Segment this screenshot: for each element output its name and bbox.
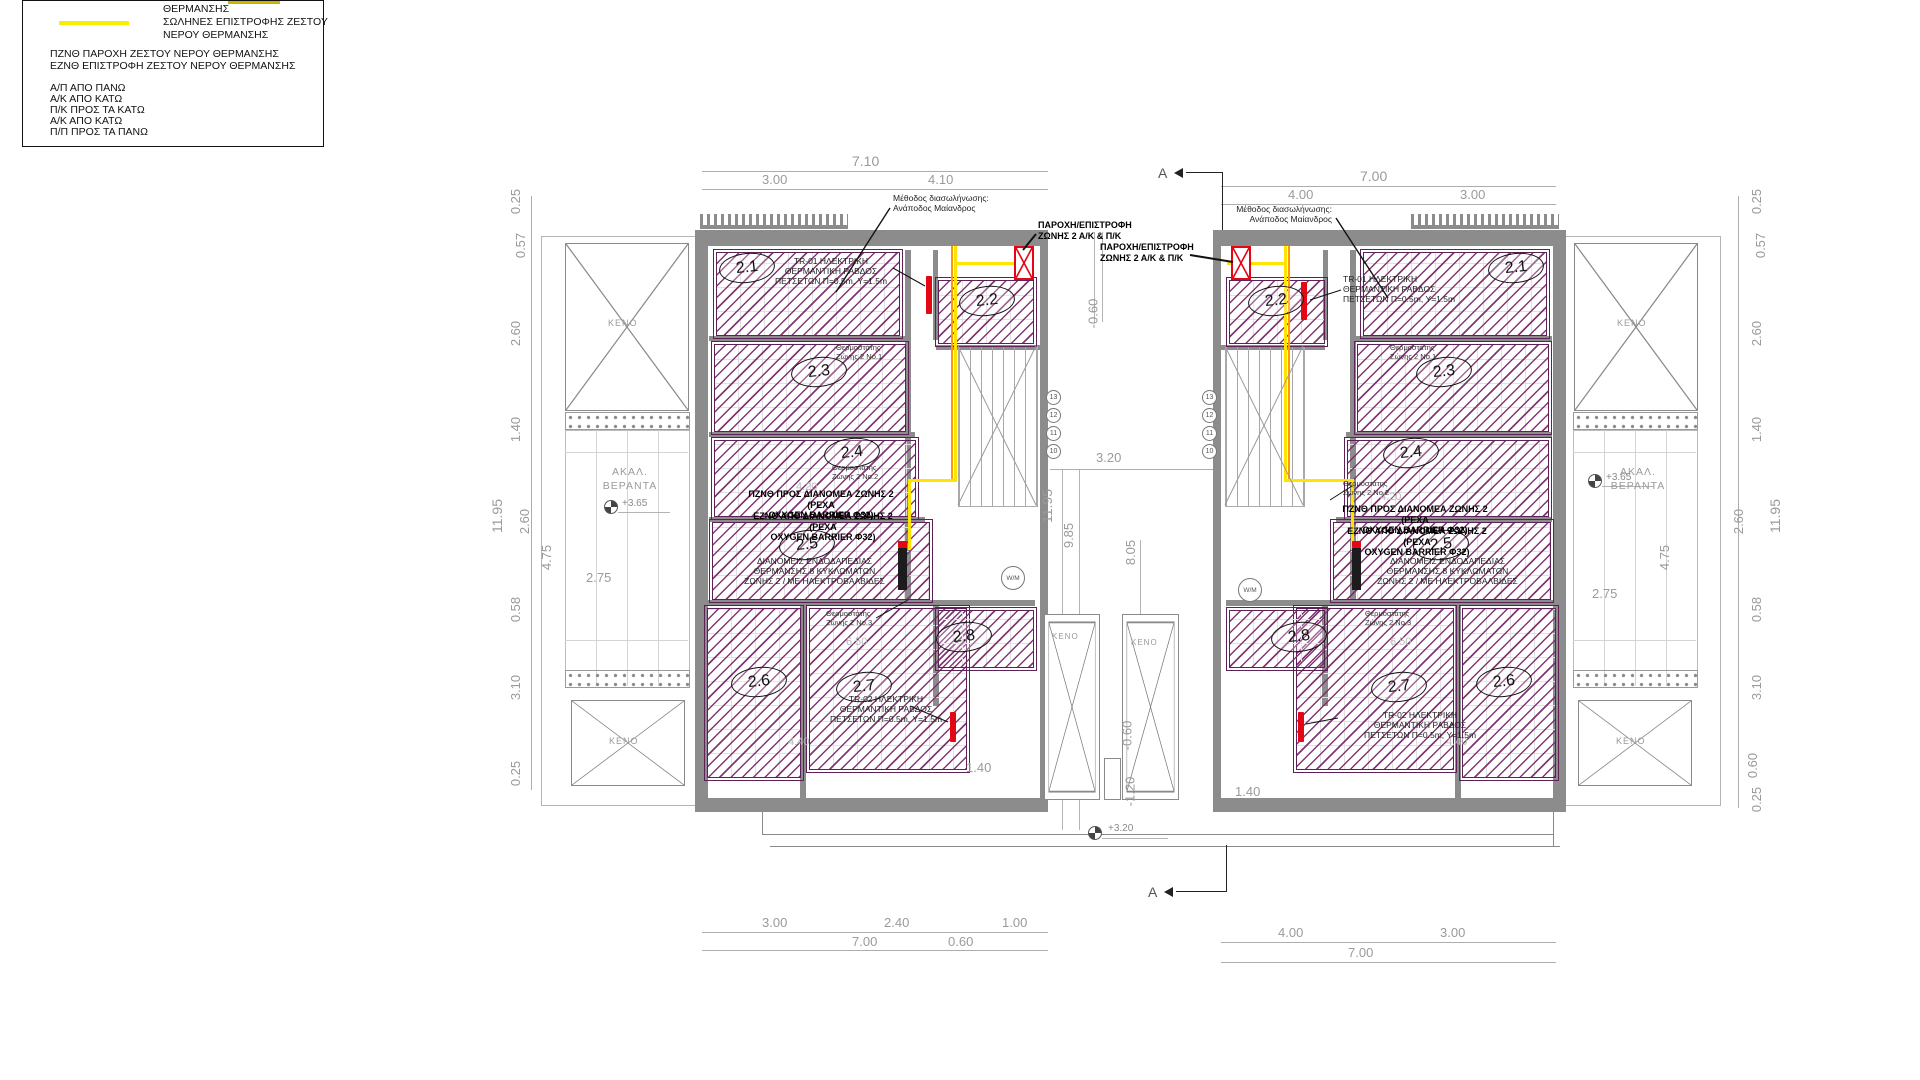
insulation-strip	[700, 214, 848, 229]
dim-line	[1221, 186, 1556, 187]
dim-label: 4.75	[539, 545, 554, 570]
dim-label: 0.25	[508, 189, 523, 214]
dim-label: 1.00	[1002, 915, 1027, 930]
annotation-manifold-left: ΔΙΑΝΟΜΕΙΣ ΕΝΔΟΔΑΠΕΔΙΑΣ ΘΕΡΜΑΝΣΗΣ 8 ΚΥΚΛΩ…	[722, 556, 907, 586]
return-pipe	[954, 246, 957, 482]
wall	[709, 336, 909, 341]
boundary-line	[1720, 236, 1721, 806]
dim-label: 3.00	[762, 915, 787, 930]
dim-label: 3.10	[508, 675, 523, 700]
annotation-thermostat: Θερμοστάτης Ζώνης 2 Νο.2	[1343, 480, 1389, 498]
balcony-line	[1573, 452, 1696, 453]
boundary-line	[541, 805, 696, 806]
keno-label: ΚΕΝΟ	[608, 318, 638, 328]
dim-label: 7.00	[1360, 168, 1387, 184]
planter-strip	[1573, 412, 1698, 430]
annotation-supply-return-right: ΠΑΡΟΧΗ/ΕΠΙΣΤΡΟΦΗ ΖΩΝΗΣ 2 Α/Κ & Π/Κ	[1100, 242, 1194, 263]
slab-outline	[770, 846, 1560, 847]
manifold-valve	[898, 541, 907, 548]
dim-label: 3.10	[1749, 675, 1764, 700]
dim-label: 0.25	[508, 761, 523, 786]
dim-line	[1738, 196, 1739, 808]
planter-strip	[565, 412, 690, 430]
dim-label: -0.60	[1119, 721, 1134, 751]
planter-strip	[565, 670, 690, 688]
keno-shaft-box	[1044, 614, 1100, 800]
dim-label: 0.25	[1749, 787, 1764, 812]
balcony-label: ΒΕΡΑΝΤΑ	[592, 480, 668, 492]
section-arrow-icon	[1164, 887, 1173, 897]
annotation-line: Ζώνης 2 Νο.2	[1343, 489, 1389, 498]
annotation-line: ΕΖΝΘ ΑΠΟ ΔΙΑΝΟΜΕΑ ΖΩΝΗΣ 2 (PEXA	[1342, 526, 1492, 547]
wall	[1213, 246, 1221, 798]
wall	[1213, 798, 1566, 812]
annotation-line: Ζώνης 2 Νο.2	[832, 473, 878, 482]
towel-rail-tr02-right	[1298, 712, 1304, 742]
annotation-tr01-left: TR-01 ΗΛΕΚΤΡΙΚΗ ΘΕΡΜΑΝΤΙΚΗ ΡΑΒΔΟΣ ΠΕΤΣΕΤ…	[765, 256, 897, 286]
riser-symbol-left	[1014, 246, 1034, 280]
balcony-line	[565, 640, 688, 641]
balcony-line	[1573, 640, 1696, 641]
dim-label: 2.75	[586, 570, 611, 585]
dim-label: 3.00	[1440, 925, 1465, 940]
annotation-thermostat: Θερμοστάτης Ζώνης 2 Νο.3	[1365, 610, 1411, 628]
annotation-thermostat: Θερμοστάτης Ζώνης 2 Νο.2	[832, 464, 878, 482]
stair-step-number: 10	[1046, 444, 1061, 459]
wall	[709, 432, 915, 437]
washing-machine-symbol: W/M	[1001, 566, 1025, 590]
dim-label: 4.75	[1657, 545, 1672, 570]
dim-label: 1.40	[966, 760, 991, 775]
annotation-line: ΘΕΡΜΑΝΤΙΚΗ ΡΑΒΔΟΣ	[1340, 720, 1500, 730]
wall	[695, 798, 1048, 812]
annotation-line: Ζώνης 2 Νο.3	[826, 619, 872, 628]
wall	[1226, 600, 1556, 606]
wall	[1455, 606, 1461, 802]
keno-label: ΚΕΝΟ	[1052, 632, 1079, 641]
annotation-manifold-right: ΔΙΑΝΟΜΕΙΣ ΕΝΔΟΔΑΠΕΔΙΑΣ ΘΕΡΜΑΝΣΗΣ 8 ΚΥΚΛΩ…	[1355, 556, 1540, 586]
keno-label: ΚΕΝΟ	[1617, 318, 1647, 328]
faint-dim: 4.40	[788, 736, 809, 748]
dim-label: 1.40	[1749, 417, 1764, 442]
annotation-line: ΠΖΝΘ ΠΡΟΣ ΔΙΑΝΟΜΕΑ ΖΩΝΗΣ 2 (PEXA	[1340, 504, 1490, 525]
dim-label: 11.95	[1767, 499, 1783, 533]
legend-text: ΝΕΡΟΥ ΘΕΡΜΑΝΣΗΣ	[163, 29, 268, 41]
dim-label: 2.60	[508, 321, 523, 346]
annotation-method: Μέθοδος διασωλήνωσης: Ανάποδος Μαίανδρος	[893, 193, 989, 213]
stair-left-unit	[958, 346, 1038, 507]
boundary-line	[1565, 236, 1721, 237]
dim-label: 2.60	[517, 509, 532, 534]
dim-label: 0.60	[948, 934, 973, 949]
faint-dim: 6.50	[846, 636, 867, 648]
supply-pipe	[951, 246, 953, 482]
floor-plan-canvas: ΘΕΡΜΑΝΣΗΣ ΣΩΛΗΝΕΣ ΕΠΙΣΤΡΟΦΗΣ ΖΕΣΤΟΥ ΝΕΡΟ…	[0, 0, 1920, 1080]
annotation-supply-return-left: ΠΑΡΟΧΗ/ΕΠΙΣΤΡΟΦΗ ΖΩΝΗΣ 2 Α/Κ & Π/Κ	[1038, 220, 1132, 241]
keno-label: ΚΕΝΟ	[1616, 736, 1646, 746]
towel-rail-tr01-left	[926, 276, 932, 314]
return-pipe	[908, 482, 911, 550]
dim-label: 7.10	[852, 153, 879, 169]
section-line	[1176, 891, 1226, 892]
legend-direction: Π/Π ΠΡΟΣ ΤΑ ΠΑΝΩ	[50, 126, 148, 138]
dim-line	[702, 950, 1048, 951]
dim-label: 3.00	[762, 172, 787, 187]
annotation-line: ΠΕΤΣΕΤΩΝ Π=0.5m, Υ=1.5m	[1343, 294, 1478, 304]
dim-label: 11.95	[489, 499, 505, 533]
legend-text: ΣΩΛΗΝΕΣ ΕΠΙΣΤΡΟΦΗΣ ΖΕΣΤΟΥ	[163, 16, 328, 28]
section-line	[1226, 845, 1227, 892]
annotation-line: TR-02 ΗΛΕΚΤΡΙΚΗ	[806, 694, 966, 704]
annotation-line: ΠΑΡΟΧΗ/ΕΠΙΣΤΡΟΦΗ	[1100, 242, 1194, 253]
annotation-line: ΘΕΡΜΑΝΣΗΣ 8 ΚΥΚΛΩΜΑΤΩΝ	[1355, 566, 1540, 576]
dim-line	[702, 171, 1048, 172]
dim-label: 2.75	[1592, 586, 1617, 601]
section-arrow-icon	[1174, 168, 1183, 178]
annotation-thermostat: Θερμοστάτης Ζώνης 2 Νο.1	[1390, 344, 1436, 362]
dim-line	[531, 196, 532, 790]
annotation-tr02-right: TR-02 ΗΛΕΚΤΡΙΚΗ ΘΕΡΜΑΝΤΙΚΗ ΡΑΒΔΟΣ ΠΕΤΣΕΤ…	[1340, 710, 1500, 740]
wall	[705, 600, 1035, 606]
dim-line	[702, 189, 1048, 190]
legend-abbrev: ΕΖΝΘ ΕΠΙΣΤΡΟΦΗ ΖΕΣΤΟΥ ΝΕΡΟΥ ΘΕΡΜΑΝΣΗΣ	[50, 60, 295, 72]
dim-label: 8.05	[1123, 540, 1138, 565]
annotation-line: OXYGEN BARRIER Φ32)	[748, 532, 898, 543]
dim-label: 3.20	[1096, 450, 1121, 465]
annotation-thermostat: Θερμοστάτης Ζώνης 2 Νο.1	[836, 344, 882, 362]
faint-dim: 6.50	[1390, 636, 1411, 648]
annotation-line: ΠΕΤΣΕΤΩΝ Π=0.5m, Υ=1.5m	[765, 276, 897, 286]
stair-step-number: 11	[1202, 426, 1217, 441]
elevation-marker	[1088, 826, 1102, 840]
slab-outline	[762, 834, 1553, 835]
supply-pipe-legend-line	[228, 1, 280, 4]
dim-label: 2.60	[1731, 509, 1746, 534]
annotation-method: Μέθοδος διασωλήνωσης: Ανάποδος Μαίανδρος	[1210, 204, 1332, 224]
dim-line	[1221, 962, 1556, 963]
stair-step-number: 11	[1046, 426, 1061, 441]
dim-label: 1.40	[508, 417, 523, 442]
keno-label: ΚΕΝΟ	[609, 736, 639, 746]
dim-label: 0.57	[1753, 233, 1768, 258]
legend-box: ΘΕΡΜΑΝΣΗΣ ΣΩΛΗΝΕΣ ΕΠΙΣΤΡΟΦΗΣ ΖΕΣΤΟΥ ΝΕΡΟ…	[22, 0, 324, 147]
dim-line	[702, 932, 1048, 933]
annotation-tr01-right: TR-01 ΗΛΕΚΤΡΙΚΗ ΘΕΡΜΑΝΤΙΚΗ ΡΑΒΔΟΣ ΠΕΤΣΕΤ…	[1343, 274, 1478, 304]
dim-label: 0.25	[1749, 189, 1764, 214]
annotation-line: ΕΖΝΘ ΑΠΟ ΔΙΑΝΟΜΕΑ ΖΩΝΗΣ 2 (PEXA	[748, 511, 898, 532]
annotation-line: ΠΑΡΟΧΗ/ΕΠΙΣΤΡΟΦΗ	[1038, 220, 1132, 231]
return-pipe	[957, 262, 1017, 265]
annotation-line: Μέθοδος διασωλήνωσης:	[1210, 204, 1332, 214]
annotation-eznth-left: ΕΖΝΘ ΑΠΟ ΔΙΑΝΟΜΕΑ ΖΩΝΗΣ 2 (PEXA OXYGEN B…	[748, 511, 898, 543]
stair-step-number: 13	[1046, 390, 1061, 405]
boundary-line	[1565, 805, 1721, 806]
annotation-line: Ζώνης 2 Νο.3	[1365, 619, 1411, 628]
annotation-line: Μέθοδος διασωλήνωσης:	[893, 193, 989, 203]
annotation-line: TR-01 ΗΛΕΚΤΡΙΚΗ	[765, 256, 897, 266]
stair-step-number: 12	[1046, 408, 1061, 423]
shaft-stub	[1104, 758, 1121, 800]
dim-label: 11.95	[1039, 489, 1055, 523]
dim-label: 0.57	[513, 233, 528, 258]
annotation-line: ΠΕΤΣΕΤΩΝ Π=0.5m, Υ=1.5m	[1340, 730, 1500, 740]
section-marker-bottom: A	[1148, 884, 1157, 900]
annotation-eznth-right: ΕΖΝΘ ΑΠΟ ΔΙΑΝΟΜΕΑ ΖΩΝΗΣ 2 (PEXA OXYGEN B…	[1342, 526, 1492, 558]
return-pipe	[1284, 246, 1287, 482]
planter-strip	[1573, 670, 1698, 688]
stair-step-number: 13	[1202, 390, 1217, 405]
annotation-thermostat: Θερμοστάτης Ζώνης 2 Νο.3	[826, 610, 872, 628]
stair-right-unit	[1225, 346, 1305, 507]
balcony-line	[565, 452, 688, 453]
dim-label: 0.58	[508, 597, 523, 622]
annotation-line: Ανάποδος Μαίανδρος	[1210, 214, 1332, 224]
dim-label: 0.60	[1745, 753, 1760, 778]
annotation-line: TR-02 ΗΛΕΚΤΡΙΚΗ	[1340, 710, 1500, 720]
keno-label: ΚΕΝΟ	[1131, 638, 1158, 647]
section-marker-top: A	[1158, 165, 1167, 181]
balcony-label: ΑΚΑΛ.	[600, 466, 660, 478]
dim-line	[1050, 469, 1213, 470]
annotation-line: Ανάποδος Μαίανδρος	[893, 203, 989, 213]
annotation-line: ΖΩΝΗΣ 2 / ΜΕ ΗΛΕΚΤΡΟΒΑΛΒΙΔΕΣ	[1355, 576, 1540, 586]
return-pipe	[908, 479, 957, 482]
annotation-line: ΘΕΡΜΑΝΤΙΚΗ ΡΑΒΔΟΣ	[765, 266, 897, 276]
elevation-marker	[604, 500, 618, 514]
wall	[1346, 432, 1552, 437]
dim-label: 0.58	[1749, 597, 1764, 622]
annotation-line: ΘΕΡΜΑΝΣΗΣ 8 ΚΥΚΛΩΜΑΤΩΝ	[722, 566, 907, 576]
annotation-line: ΘΕΡΜΑΝΤΙΚΗ ΡΑΒΔΟΣ	[1343, 284, 1478, 294]
riser-symbol-right	[1231, 246, 1251, 280]
annotation-line: ΠΖΝΘ ΠΡΟΣ ΔΙΑΝΟΜΕΑ ΖΩΝΗΣ 2 (PEXA	[746, 489, 896, 510]
annotation-tr02-left: TR-02 ΗΛΕΚΤΡΙΚΗ ΘΕΡΜΑΝΤΙΚΗ ΡΑΒΔΟΣ ΠΕΤΣΕΤ…	[806, 694, 966, 724]
annotation-line: ΖΩΝΗΣ 2 Α/Κ & Π/Κ	[1038, 231, 1132, 242]
annotation-line: ΔΙΑΝΟΜΕΙΣ ΕΝΔΟΔΑΠΕΔΙΑΣ	[1355, 556, 1540, 566]
legend-text: ΘΕΡΜΑΝΣΗΣ	[163, 3, 229, 15]
dim-label: 4.00	[1278, 925, 1303, 940]
elevation-label: +3.65	[622, 498, 647, 509]
dim-label: 1.40	[1235, 784, 1260, 799]
dim-label: 9.85	[1061, 523, 1076, 548]
dim-label: 4.10	[928, 172, 953, 187]
insulation-strip	[1411, 214, 1559, 229]
boundary-line	[541, 236, 542, 806]
stair-step-number: 12	[1202, 408, 1217, 423]
elevation-line	[1102, 838, 1168, 839]
wall	[1213, 230, 1566, 246]
dim-label: 2.60	[1749, 321, 1764, 346]
wall	[1352, 336, 1552, 341]
elevation-marker	[1588, 474, 1602, 488]
dim-label: 3.00	[1460, 187, 1485, 202]
annotation-line: ΘΕΡΜΑΝΤΙΚΗ ΡΑΒΔΟΣ	[806, 704, 966, 714]
balcony-line	[596, 430, 597, 686]
annotation-line: ΖΩΝΗΣ 2 Α/Κ & Π/Κ	[1100, 253, 1194, 264]
washing-machine-symbol: W/M	[1238, 578, 1262, 602]
annotation-line: ΖΩΝΗΣ 2 / ΜΕ ΗΛΕΚΤΡΟΒΑΛΒΙΔΕΣ	[722, 576, 907, 586]
stair-step-number: 10	[1202, 444, 1217, 459]
annotation-line: Ζώνης 2 Νο.1	[1390, 353, 1436, 362]
dim-label: 4.00	[1288, 187, 1313, 202]
return-pipe-legend-line	[59, 21, 129, 25]
balcony-line	[1604, 430, 1605, 686]
wall	[695, 230, 1048, 246]
elevation-label: +3.65	[1606, 472, 1631, 483]
slab-outline	[762, 812, 763, 835]
supply-pipe	[1288, 246, 1290, 482]
annotation-line: Ζώνης 2 Νο.1	[836, 353, 882, 362]
dim-label: 7.00	[852, 934, 877, 949]
dim-label: -1.20	[1122, 777, 1137, 807]
dim-label: 2.40	[884, 915, 909, 930]
dim-line	[1221, 942, 1556, 943]
elevation-line	[618, 512, 670, 513]
annotation-line: ΠΕΤΣΕΤΩΝ Π=0.5m, Υ=1.5m	[806, 714, 966, 724]
elevation-label: +3.20	[1108, 823, 1133, 834]
section-line	[1186, 172, 1222, 173]
dim-label: -0.60	[1085, 299, 1100, 329]
boundary-line	[541, 236, 696, 237]
legend-abbrev: ΠΖΝΘ ΠΑΡΟΧΗ ΖΕΣΤΟΥ ΝΕΡΟΥ ΘΕΡΜΑΝΣΗΣ	[50, 48, 279, 60]
annotation-line: ΔΙΑΝΟΜΕΙΣ ΕΝΔΟΔΑΠΕΔΙΑΣ	[722, 556, 907, 566]
annotation-line: TR-01 ΗΛΕΚΤΡΙΚΗ	[1343, 274, 1478, 284]
dim-label: 7.00	[1348, 945, 1373, 960]
